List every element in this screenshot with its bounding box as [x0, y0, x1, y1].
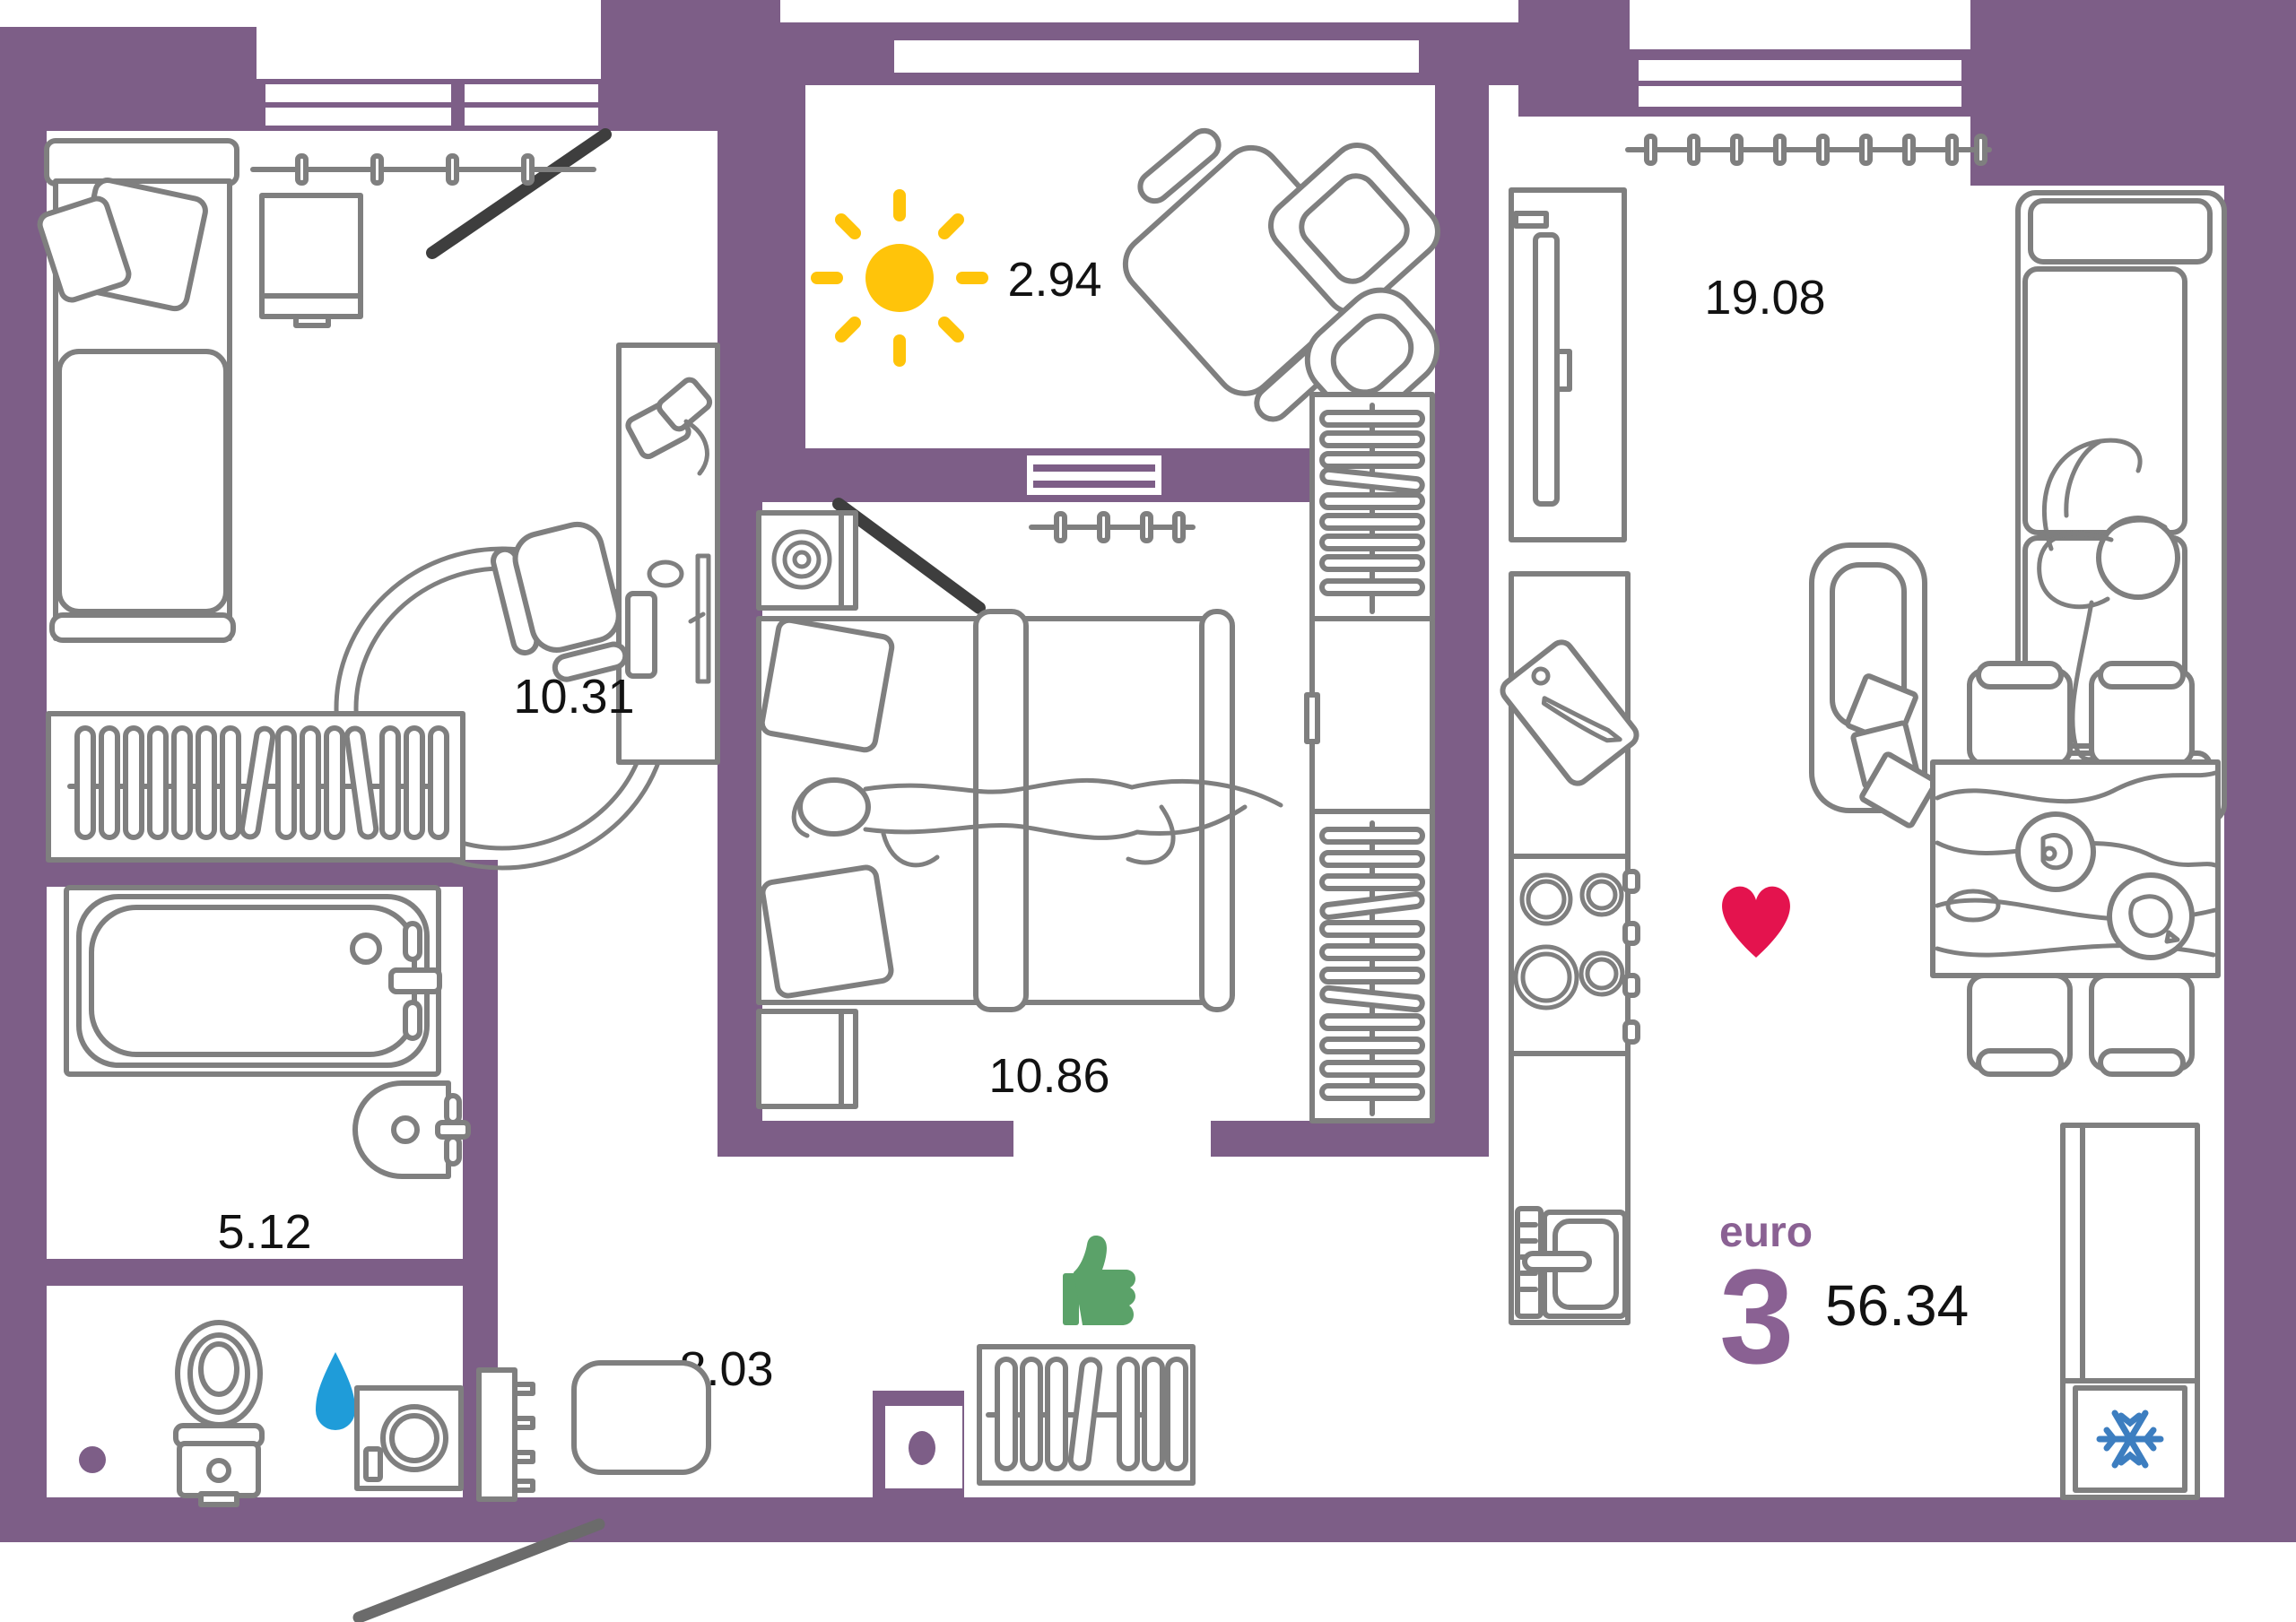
thumbs-up-icon [1063, 1236, 1135, 1325]
door-hinge-dot [909, 1431, 935, 1465]
door-bedroom-small [432, 134, 605, 253]
entry-radiator [979, 1347, 1193, 1483]
door-bedroom-main [839, 504, 979, 608]
bathroom-sink [355, 1083, 468, 1176]
curtain-rail-bedroom-main [1031, 514, 1193, 541]
cutting-board-section [1499, 574, 1641, 856]
floor-plan-page: 10.31 2.94 [0, 0, 2296, 1622]
plumbing-dot [79, 1446, 106, 1473]
dining-table [1933, 762, 2218, 976]
nightstand-plain [759, 1011, 856, 1106]
room-balcony: 2.94 [817, 125, 1452, 433]
curtain-rail-living [1628, 136, 1989, 163]
heart-icon [1722, 887, 1790, 958]
kitchen-counter [1499, 574, 1641, 1323]
floor-plan: 10.31 2.94 [0, 0, 2296, 1622]
stove [1511, 856, 1638, 1054]
room-bathroom: 5.12 [66, 888, 468, 1259]
doormat [574, 1363, 709, 1472]
water-drop-icon [316, 1352, 355, 1430]
sun-icon [817, 195, 982, 360]
nightstand-lamp [759, 513, 856, 608]
dining-chair [2092, 664, 2192, 764]
unit-summary: euro 3 56.34 [1719, 1209, 1969, 1392]
area-label-living-kitchen: 19.08 [1704, 271, 1825, 325]
kitchen-sink [1511, 1054, 1628, 1323]
room-bedroom-main: 10.86 [759, 395, 1432, 1121]
bathtub [66, 888, 439, 1074]
room-bedroom-small: 10.31 [37, 141, 717, 868]
dining-chair [1970, 664, 2070, 764]
closet-bedroom-main [1307, 395, 1432, 1121]
tv-stand [262, 195, 361, 325]
coffee-table [1812, 545, 1936, 827]
closet-bedroom-small [48, 714, 463, 860]
area-label-bedroom-main: 10.86 [988, 1049, 1109, 1103]
desk-chair [489, 519, 631, 690]
dining-chair [1970, 976, 2070, 1074]
double-bed [759, 612, 1281, 1010]
tv-cabinet [1511, 190, 1624, 540]
area-label-bedroom-small: 10.31 [513, 670, 634, 724]
fridge-cabinet [2063, 1125, 2197, 1497]
unit-rooms-count: 3 [1719, 1241, 1794, 1392]
unit-total-area: 56.34 [1825, 1273, 1969, 1338]
single-bed [37, 141, 237, 640]
area-label-balcony: 2.94 [1007, 253, 1101, 307]
toilet [176, 1323, 262, 1505]
wc-radiator [479, 1370, 533, 1499]
washing-machine [357, 1388, 461, 1488]
dining-chair [2092, 976, 2192, 1074]
room-living-kitchen: 19.08 [1499, 136, 2224, 1497]
area-label-bathroom: 5.12 [217, 1205, 311, 1259]
balcony-furniture [1114, 125, 1452, 433]
